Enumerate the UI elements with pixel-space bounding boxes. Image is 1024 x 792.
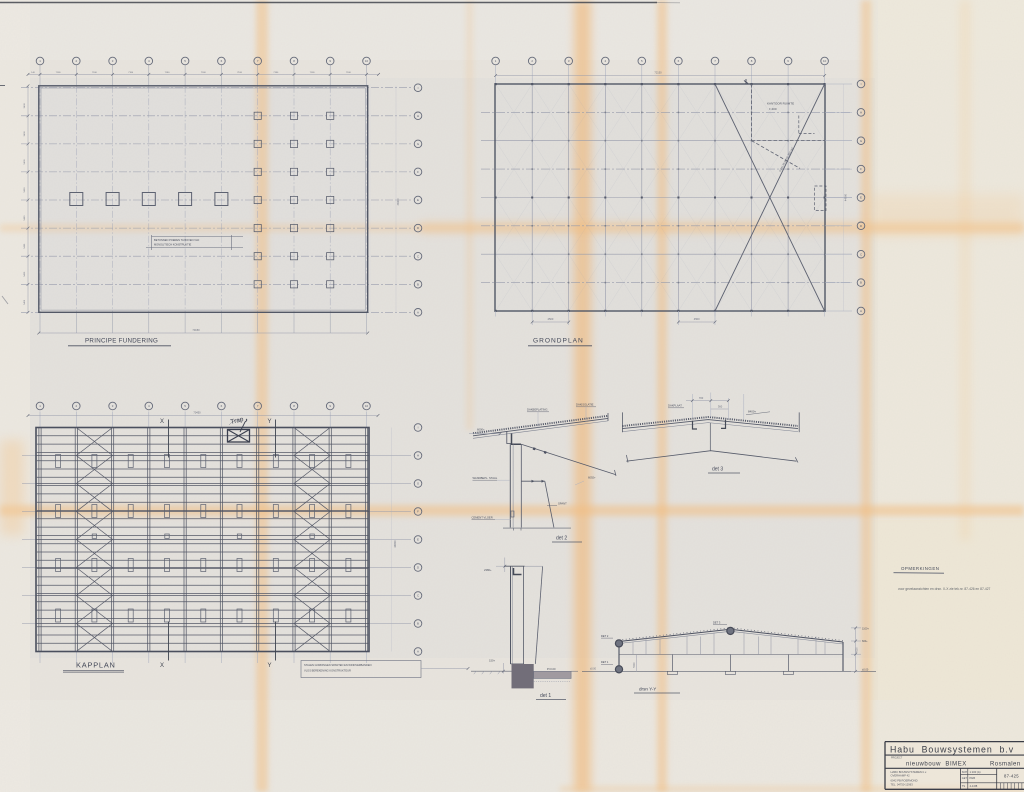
svg-text:det 1: det 1: [540, 693, 551, 699]
svg-text:5400: 5400: [24, 215, 26, 221]
svg-text:BETONNEN POEREN TA BOVEN VLD: BETONNEN POEREN TA BOVEN VLD: [154, 238, 199, 242]
svg-text:E: E: [417, 198, 419, 202]
svg-text:DAKBEPLATING: DAKBEPLATING: [527, 408, 547, 412]
svg-text:F: F: [860, 167, 862, 171]
svg-text:A: A: [417, 310, 419, 314]
svg-text:Habu Bouwsystemen b.v: Habu Bouwsystemen b.v: [890, 745, 1014, 755]
svg-text:B: B: [860, 281, 862, 285]
svg-text:D: D: [417, 566, 419, 570]
svg-text:5400: 5400: [24, 299, 26, 305]
svg-text:7180: 7180: [237, 72, 243, 74]
svg-text:10: 10: [365, 404, 369, 408]
svg-text:F: F: [417, 510, 419, 514]
svg-text:A: A: [417, 650, 419, 654]
svg-text:7180: 7180: [165, 72, 171, 74]
svg-text:± 200: ± 200: [769, 107, 777, 111]
svg-text:44800: 44800: [397, 198, 400, 205]
svg-text:P=0.00: P=0.00: [547, 667, 556, 671]
svg-text:6092+: 6092+: [588, 476, 596, 480]
svg-text:H: H: [860, 111, 862, 115]
svg-text:2380+: 2380+: [484, 568, 492, 572]
svg-text:SCH: SCH: [962, 771, 967, 774]
svg-text:7180: 7180: [346, 72, 352, 74]
svg-text:10: 10: [365, 59, 369, 63]
svg-text:WANDBEPL. STAAL: WANDBEPL. STAAL: [473, 476, 498, 480]
svg-text:150+: 150+: [489, 658, 495, 662]
svg-text:MONOLITISCH KONSTRUKTIE: MONOLITISCH KONSTRUKTIE: [154, 243, 191, 247]
svg-text:TEL. 04750-12963: TEL. 04750-12963: [891, 783, 914, 787]
svg-text:det 3: det 3: [712, 467, 723, 473]
svg-text:B: B: [417, 622, 419, 626]
svg-text:10: 10: [823, 59, 827, 63]
svg-text:44800: 44800: [393, 540, 397, 548]
svg-text:H: H: [417, 454, 419, 458]
svg-text:5400: 5400: [24, 243, 26, 249]
svg-text:Y: Y: [267, 663, 271, 669]
svg-text:6000+: 6000+: [477, 428, 485, 432]
svg-text:4500: 4500: [694, 317, 700, 321]
svg-text:600+: 600+: [862, 640, 868, 643]
svg-text:voor gevelaanzichten en drsn.: voor gevelaanzichten en drsn. X-X zie te…: [898, 587, 991, 591]
svg-text:H: H: [417, 114, 419, 118]
svg-text:±0.00: ±0.00: [590, 668, 597, 671]
svg-text:8400+: 8400+: [748, 410, 756, 414]
svg-text:E: E: [860, 196, 862, 200]
svg-text:DET 2: DET 2: [601, 634, 609, 638]
svg-text:7180: 7180: [273, 72, 279, 74]
svg-text:KANTOOR RUIMTE: KANTOOR RUIMTE: [767, 102, 794, 106]
svg-text:GRONDPLAN: GRONDPLAN: [533, 338, 584, 345]
svg-text:VLGS BEREKENING KONSTRUKTEUR: VLGS BEREKENING KONSTRUKTEUR: [304, 669, 351, 673]
svg-text:D: D: [860, 224, 862, 228]
svg-text:TS: TS: [962, 785, 966, 788]
svg-text:360: 360: [718, 404, 723, 408]
svg-text:6000: 6000: [857, 647, 859, 653]
svg-text:7180: 7180: [201, 72, 207, 74]
svg-text:OPMERKINGEN: OPMERKINGEN: [901, 566, 939, 571]
svg-text:nieuwbouw BIMEX: nieuwbouw BIMEX: [906, 762, 967, 768]
svg-text:D: D: [417, 226, 419, 230]
svg-text:HABU BOUWSYSTEMEN b.v.: HABU BOUWSYSTEMEN b.v.: [891, 770, 927, 774]
svg-text:87-425: 87-425: [1004, 774, 1019, 779]
svg-text:1:100 (A): 1:100 (A): [970, 770, 981, 774]
svg-text:5400: 5400: [24, 103, 26, 109]
svg-text:F: F: [417, 170, 419, 174]
svg-text:DET 1: DET 1: [601, 660, 609, 664]
svg-text:drsn Y-Y: drsn Y-Y: [639, 687, 656, 692]
svg-text:SPANT: SPANT: [558, 502, 567, 506]
svg-text:6042 PB ROERMOND: 6042 PB ROERMOND: [891, 779, 918, 783]
svg-text:7180: 7180: [56, 72, 62, 74]
svg-text:C: C: [860, 252, 862, 256]
svg-text:KAPPLAN: KAPPLAN: [76, 661, 116, 670]
svg-text:7180: 7180: [92, 72, 98, 74]
svg-text:7180: 7180: [310, 72, 316, 74]
svg-text:44800: 44800: [844, 193, 848, 201]
svg-text:4500: 4500: [548, 317, 554, 321]
svg-text:5400: 5400: [24, 159, 26, 165]
svg-text:5400: 5400: [24, 131, 26, 137]
svg-text:PROJECT: PROJECT: [891, 757, 903, 760]
svg-text:72150: 72150: [654, 71, 662, 75]
svg-text:Rosmalen: Rosmalen: [990, 762, 1021, 768]
svg-text:STALEN GORDINGEN SPANTEN EN: STALEN GORDINGEN SPANTEN EN WINDVERBANDE…: [304, 663, 372, 667]
svg-text:5400: 5400: [24, 271, 26, 277]
svg-text:70450: 70450: [193, 411, 201, 415]
svg-text:±0.00: ±0.00: [862, 669, 869, 672]
svg-text:Y: Y: [267, 419, 271, 425]
svg-text:1100+: 1100+: [862, 628, 869, 631]
svg-text:5400: 5400: [24, 187, 26, 193]
svg-text:700: 700: [699, 396, 704, 400]
svg-text:OVERHAMP 42: OVERHAMP 42: [891, 774, 911, 778]
svg-text:E: E: [417, 538, 419, 542]
svg-text:X: X: [160, 419, 164, 425]
svg-text:CEMENT VLOER: CEMENT VLOER: [472, 516, 493, 520]
svg-text:DAKISOLATIE: DAKISOLATIE: [576, 403, 594, 407]
svg-text:DET 3: DET 3: [713, 621, 721, 625]
svg-text:PRINCIPE FUNDERING: PRINCIPE FUNDERING: [85, 338, 158, 345]
svg-text:B: B: [417, 282, 419, 286]
svg-text:5000: 5000: [634, 662, 636, 668]
svg-text:det 2: det 2: [556, 536, 567, 542]
svg-text:X: X: [160, 663, 164, 669]
svg-text:A: A: [860, 309, 862, 313]
svg-text:DAKPLAAT: DAKPLAAT: [668, 404, 682, 408]
svg-text:4-3-88: 4-3-88: [970, 784, 978, 788]
svg-text:GET: GET: [962, 777, 968, 780]
svg-text:70150: 70150: [192, 328, 200, 332]
svg-text:PHB: PHB: [970, 776, 976, 780]
svg-text:C: C: [417, 594, 419, 598]
svg-text:7180: 7180: [128, 72, 134, 74]
svg-text:C: C: [417, 254, 419, 258]
